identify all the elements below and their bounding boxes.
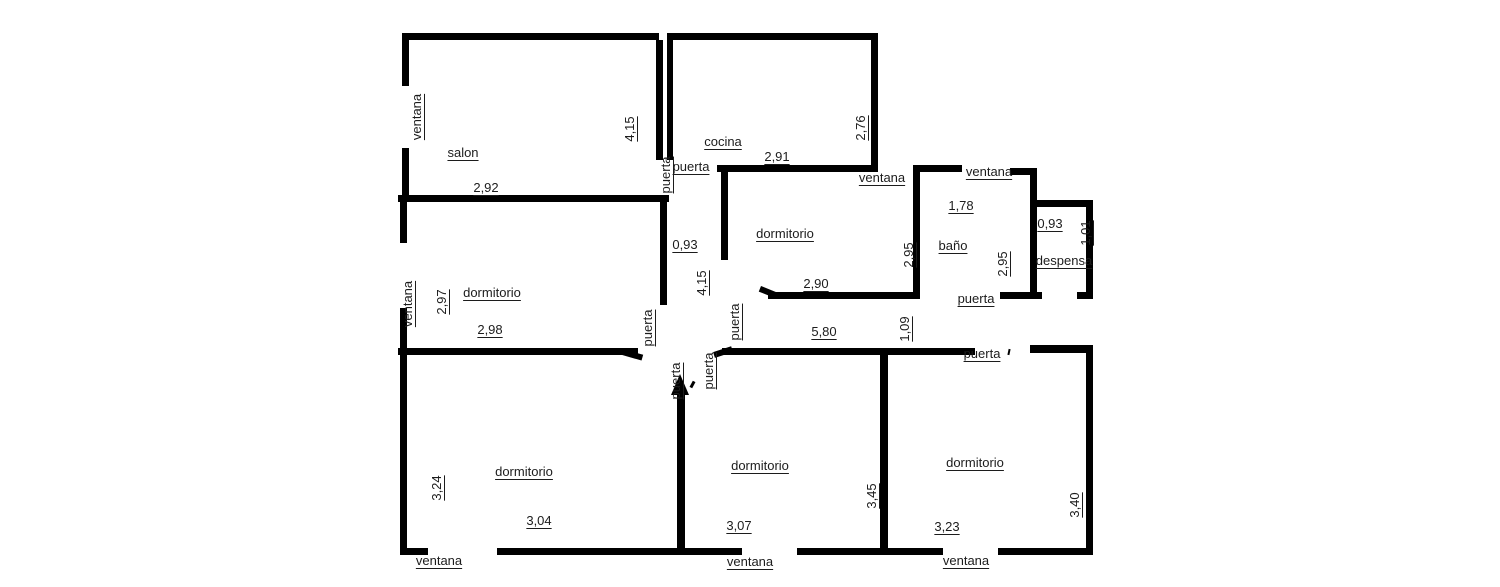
hall-width-dim: 0,93	[672, 238, 697, 252]
floor-plan: ventanasalon2,924,15puertapuertacocina2,…	[0, 0, 1500, 587]
wall-segment	[400, 202, 407, 243]
door-leaf	[621, 349, 643, 361]
wall-segment	[1086, 345, 1093, 555]
dormitorio2-width-dim: 2,98	[477, 323, 502, 337]
salon-label: salon	[447, 146, 478, 160]
tick-mark	[1007, 349, 1010, 355]
salon-height-dim: 4,15	[623, 116, 637, 141]
dormitorio3-window-label: ventana	[416, 554, 462, 568]
wall-segment	[402, 40, 409, 86]
wall-segment	[398, 348, 638, 355]
bano-width-dim: 1,78	[948, 199, 973, 213]
wall-segment	[721, 168, 728, 260]
dormitorio5-window-label: ventana	[943, 554, 989, 568]
wall-segment	[880, 350, 888, 555]
salon-window-label: ventana	[410, 94, 424, 140]
dormitorio5-width-dim: 3,23	[934, 520, 959, 534]
wall-segment	[402, 33, 659, 40]
cocina-width-dim: 2,91	[764, 150, 789, 164]
wall-segment	[656, 40, 663, 160]
dormitorio1-label: dormitorio	[756, 227, 814, 241]
dormitorio4-height-dim: 3,45	[865, 483, 879, 508]
cocina-door-label: puerta	[673, 160, 710, 174]
bano-label: baño	[939, 239, 968, 253]
bano-height-dim: 2,95	[996, 251, 1010, 276]
wall-segment	[797, 548, 887, 555]
dormitorio1-width-dim: 2,90	[803, 277, 828, 291]
despensa-label: despensa	[1036, 254, 1092, 268]
dormitorio2-height-dim: 2,97	[435, 289, 449, 314]
dormitorio5-height-dim: 3,40	[1068, 492, 1082, 517]
dormitorio3-height-dim: 3,24	[430, 475, 444, 500]
wall-segment	[1030, 168, 1037, 299]
dormitorio1-height-dim: 2,95	[902, 242, 916, 267]
dormitorio3-label: dormitorio	[495, 465, 553, 479]
wall-segment	[1000, 292, 1042, 299]
dormitorio4-label: dormitorio	[731, 459, 789, 473]
dormitorio5-label: dormitorio	[946, 456, 1004, 470]
wall-segment	[913, 165, 962, 172]
wall-segment	[722, 348, 975, 355]
dormitorio4-window-label: ventana	[727, 555, 773, 569]
wall-segment	[1030, 200, 1093, 207]
dormitorio4-door-label: puerta	[702, 353, 716, 390]
bano-window-label: ventana	[966, 165, 1012, 179]
dormitorio2-door-label: puerta	[641, 310, 655, 347]
dormitorio2-label: dormitorio	[463, 286, 521, 300]
wall-segment	[677, 393, 685, 555]
dormitorio1-door-label: puerta	[728, 304, 742, 341]
wall-segment	[1030, 345, 1093, 353]
despensa-height-dim: 1,01	[1079, 220, 1093, 245]
corridor-length-dim: 5,80	[811, 325, 836, 339]
dormitorio4-width-dim: 3,07	[726, 519, 751, 533]
cocina-label: cocina	[704, 135, 742, 149]
wall-segment	[402, 148, 409, 202]
wall-segment	[998, 548, 1093, 555]
tick-mark	[690, 381, 696, 389]
dormitorio1-window-label: ventana	[859, 171, 905, 185]
salon-door-label: puerta	[659, 157, 673, 194]
wall-segment	[398, 195, 669, 202]
salon-width-dim: 2,92	[473, 181, 498, 195]
corridor-width-dim: 1,09	[898, 316, 912, 341]
hall-length-dim: 4,15	[695, 270, 709, 295]
entry-door-label: puerta	[964, 347, 1001, 361]
despensa-width-dim: 0,93	[1037, 217, 1062, 231]
cocina-height-dim: 2,76	[854, 115, 868, 140]
wall-segment	[1077, 292, 1093, 299]
wall-segment	[1010, 168, 1030, 175]
dormitorio3-door-label: puerta	[669, 363, 683, 400]
wall-segment	[660, 202, 667, 305]
wall-segment	[667, 40, 673, 160]
wall-segment	[717, 165, 878, 172]
wall-segment	[913, 165, 920, 299]
wall-segment	[768, 292, 918, 299]
wall-segment	[667, 33, 878, 40]
dormitorio3-width-dim: 3,04	[526, 514, 551, 528]
bano-door-label: puerta	[958, 292, 995, 306]
wall-segment	[871, 33, 878, 172]
wall-segment	[400, 353, 407, 555]
door-leaf	[713, 346, 733, 358]
dormitorio2-window-label: ventana	[401, 281, 415, 327]
wall-segment	[497, 548, 684, 555]
wall-segment	[1086, 200, 1093, 297]
wall-segment	[887, 548, 943, 555]
